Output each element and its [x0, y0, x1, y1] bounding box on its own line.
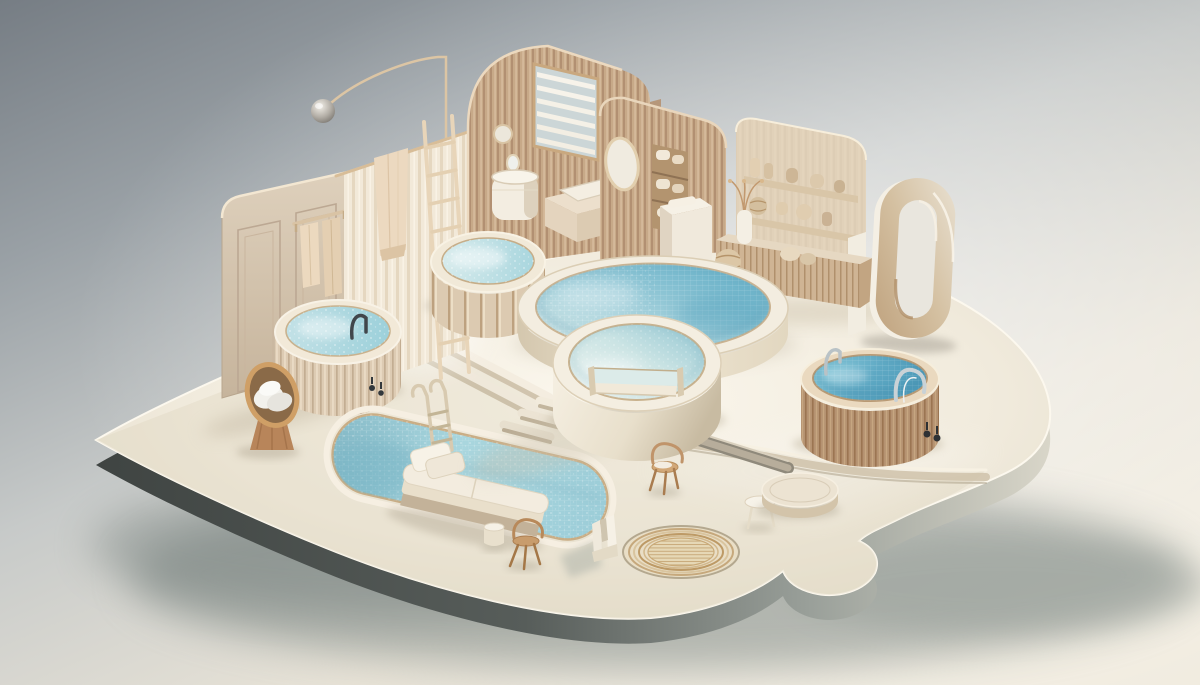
window-blinds: [534, 64, 598, 160]
spa-scene: Miniature isometric spa diorama: [0, 0, 1200, 685]
round-mirror: [494, 125, 512, 143]
right-hot-tub: [792, 349, 944, 467]
spillway-notch: [588, 366, 684, 397]
ottoman-disc: [756, 473, 840, 519]
lamp-shade: [311, 99, 335, 123]
rug: [623, 526, 739, 578]
scene-canvas: [0, 0, 1200, 685]
mirror-wall: [600, 98, 726, 270]
stool: [481, 523, 505, 552]
